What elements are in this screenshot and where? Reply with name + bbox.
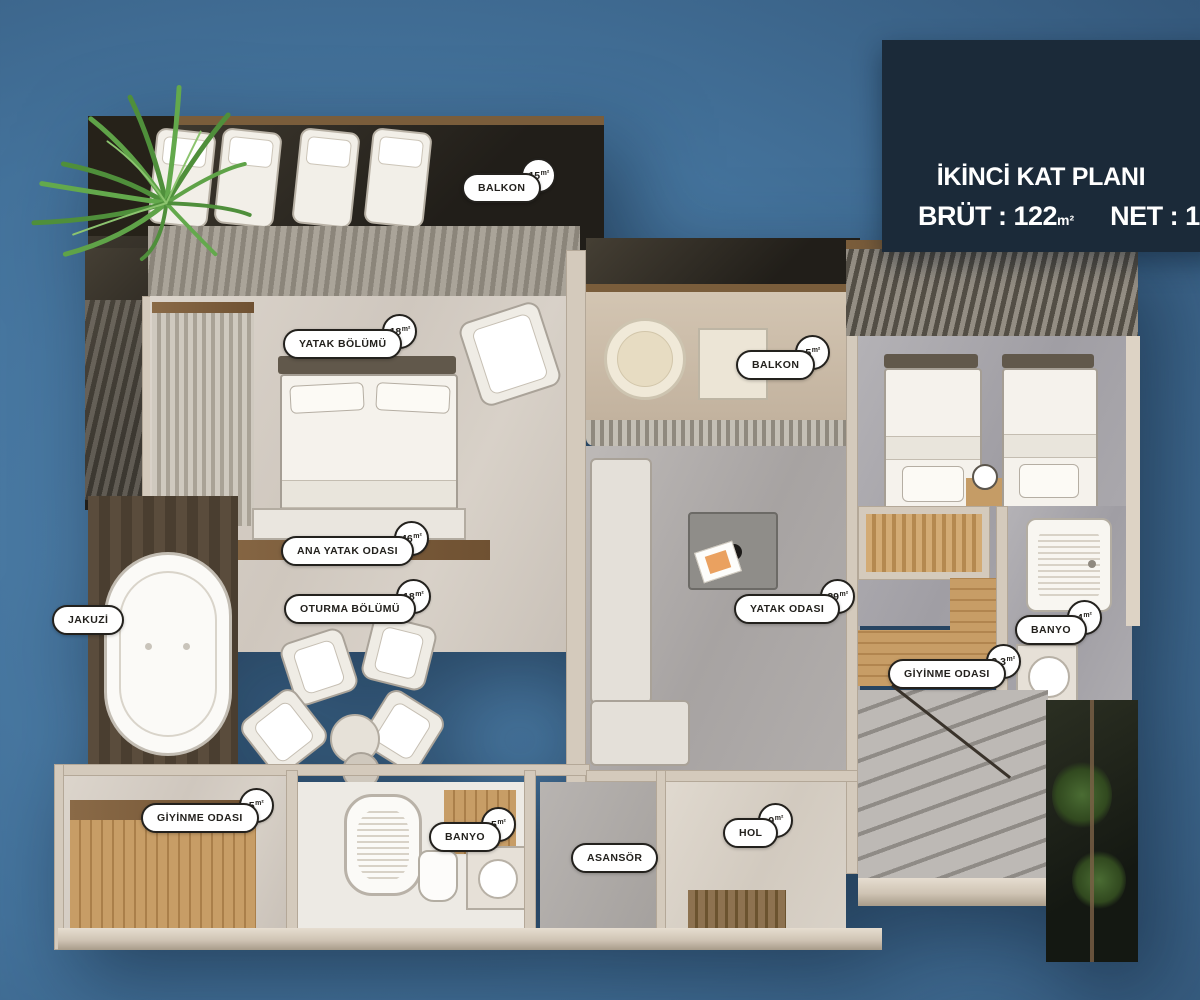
center-wood-edge xyxy=(586,284,860,292)
bottom-partition-wall xyxy=(58,764,590,776)
armchair-cushion xyxy=(471,312,549,395)
chair-cushion xyxy=(252,700,316,765)
room-label-oturma-bolumu: 18m² OTURMA BÖLÜMÜ xyxy=(284,594,416,624)
bed-cushion xyxy=(1019,464,1079,498)
brut-unit: m² xyxy=(1057,212,1074,228)
shower-tray xyxy=(1026,518,1112,612)
bed-pillow xyxy=(375,382,450,414)
room-label-ana-yatak-odasi: 46m² ANA YATAK ODASI xyxy=(281,536,414,566)
room-label-pill: BANYO xyxy=(1015,615,1087,645)
banyo-vanity xyxy=(466,846,526,910)
banyo-divider-left xyxy=(286,770,298,942)
rattan-cushion xyxy=(617,331,673,387)
right-bedroom-curtains xyxy=(846,240,1138,336)
room-label-jakuzi: JAKUZİ xyxy=(52,605,124,635)
plan-title-box: İKİNCİ KAT PLANI BRÜT : 122m²NET : 110m² xyxy=(882,40,1200,252)
room-label-balkon-top: 15m² BALKON xyxy=(462,173,541,203)
room-label-pill: BALKON xyxy=(462,173,541,203)
room-label-pill: OTURMA BÖLÜMÜ xyxy=(284,594,416,624)
jacuzzi-jet xyxy=(145,643,152,650)
staircase xyxy=(858,690,1048,878)
room-label-yatak-bolumu: 18m² YATAK BÖLÜMÜ xyxy=(283,329,402,359)
net-value: 110 xyxy=(1185,201,1200,231)
bed-blanket-fold xyxy=(1004,434,1096,458)
room-label-pill: HOL xyxy=(723,818,778,848)
right-wardrobe-interior xyxy=(866,514,982,572)
bed-pillow xyxy=(289,382,364,414)
wash-basin xyxy=(478,859,518,899)
room-label-pill: YATAK ODASI xyxy=(734,594,840,624)
lounger-cushion xyxy=(377,136,424,168)
net-label: NET : xyxy=(1110,201,1185,231)
lounger-cushion xyxy=(305,136,352,168)
banyo-divider-right xyxy=(524,770,536,942)
brut-value: 122 xyxy=(1013,201,1057,231)
rattan-lounge-chair xyxy=(604,318,686,400)
garden-bush xyxy=(1052,760,1112,830)
bottom-left-outer-wall xyxy=(54,764,64,950)
room-label-pill: YATAK BÖLÜMÜ xyxy=(283,329,402,359)
art-print-color xyxy=(705,550,731,574)
area-unit: m² xyxy=(497,819,506,826)
stair-rail xyxy=(891,684,1011,779)
bathtub xyxy=(344,794,422,896)
twin-bed xyxy=(1002,368,1098,510)
area-unit: m² xyxy=(255,800,264,807)
area-unit: m² xyxy=(775,815,784,822)
room-label-pill: ASANSÖR xyxy=(571,843,658,873)
dressing-bench xyxy=(70,820,256,928)
area-unit: m² xyxy=(1006,656,1015,663)
sofa-chaise xyxy=(590,700,690,766)
jacuzzi-tub xyxy=(104,552,232,756)
chair-cushion xyxy=(373,700,433,761)
area-unit: m² xyxy=(415,591,424,598)
chair-cushion xyxy=(373,626,425,681)
area-unit: m² xyxy=(840,591,849,598)
room-label-pill: ANA YATAK ODASI xyxy=(281,536,414,566)
area-unit: m² xyxy=(541,170,550,177)
room-label-pill: GİYİNME ODASI xyxy=(141,803,259,833)
sun-lounger xyxy=(291,127,361,229)
room-label-pill: BANYO xyxy=(429,822,501,852)
brut-label: BRÜT : xyxy=(918,201,1013,231)
stairs-front-wall xyxy=(858,878,1048,906)
left-drapes xyxy=(85,300,149,500)
twin-bed-headboard xyxy=(884,354,978,368)
living-bottom-wall xyxy=(586,770,858,782)
wardrobe-top-bar xyxy=(152,302,254,313)
garden-bush xyxy=(1072,850,1126,910)
sun-lounger xyxy=(363,127,433,229)
area-unit: m² xyxy=(1083,612,1092,619)
area-unit: m² xyxy=(812,347,821,354)
fern-plant xyxy=(4,58,260,264)
twin-bed-headboard xyxy=(1002,354,1094,368)
bed-blanket-fold xyxy=(886,436,980,460)
room-label-pill: JAKUZİ xyxy=(52,605,124,635)
bed-blanket-fold xyxy=(282,480,456,508)
bed-cushion xyxy=(902,466,964,502)
page: { "palette": { "background_top": "#2e507… xyxy=(0,0,1200,1000)
right-outer-wall xyxy=(1126,336,1140,626)
center-wall xyxy=(566,250,586,790)
room-label-pill: BALKON xyxy=(736,350,815,380)
room-label-giyinme-odasi-right: 3,3m² GİYİNME ODASI xyxy=(888,659,1006,689)
room-label-banyo-bottom: 5m² BANYO xyxy=(429,822,501,852)
sitting-chair xyxy=(359,613,439,693)
center-roof-edge xyxy=(586,238,860,292)
sofa xyxy=(590,458,652,704)
glass-mullion xyxy=(1090,700,1094,962)
room-label-asansor: ASANSÖR xyxy=(571,843,658,873)
area-unit: m² xyxy=(413,533,422,540)
room-label-giyinme-odasi-left: 5m² GİYİNME ODASI xyxy=(141,803,259,833)
wall-clock xyxy=(972,464,998,490)
toilet xyxy=(418,850,458,902)
shower-drain xyxy=(1088,560,1096,568)
plan-area-totals: BRÜT : 122m²NET : 110m² xyxy=(882,201,1200,232)
rear-glass-garden xyxy=(1046,700,1138,962)
bottom-outer-wall xyxy=(58,928,882,950)
room-label-balkon-mid: 5m² BALKON xyxy=(736,350,815,380)
jacuzzi-jet xyxy=(183,643,190,650)
jacuzzi-tub-inner xyxy=(119,571,217,737)
room-label-hol: 9m² HOL xyxy=(723,818,778,848)
room-label-pill: GİYİNME ODASI xyxy=(888,659,1006,689)
master-wardrobe xyxy=(152,302,254,526)
chair-cushion xyxy=(292,639,346,696)
area-unit: m² xyxy=(402,326,411,333)
room-label-banyo-right: 4m² BANYO xyxy=(1015,615,1087,645)
plan-title: İKİNCİ KAT PLANI xyxy=(882,163,1200,192)
bathtub-ribs xyxy=(357,807,409,883)
room-label-yatak-odasi: 29m² YATAK ODASI xyxy=(734,594,840,624)
sheer-curtain-row xyxy=(586,420,860,446)
